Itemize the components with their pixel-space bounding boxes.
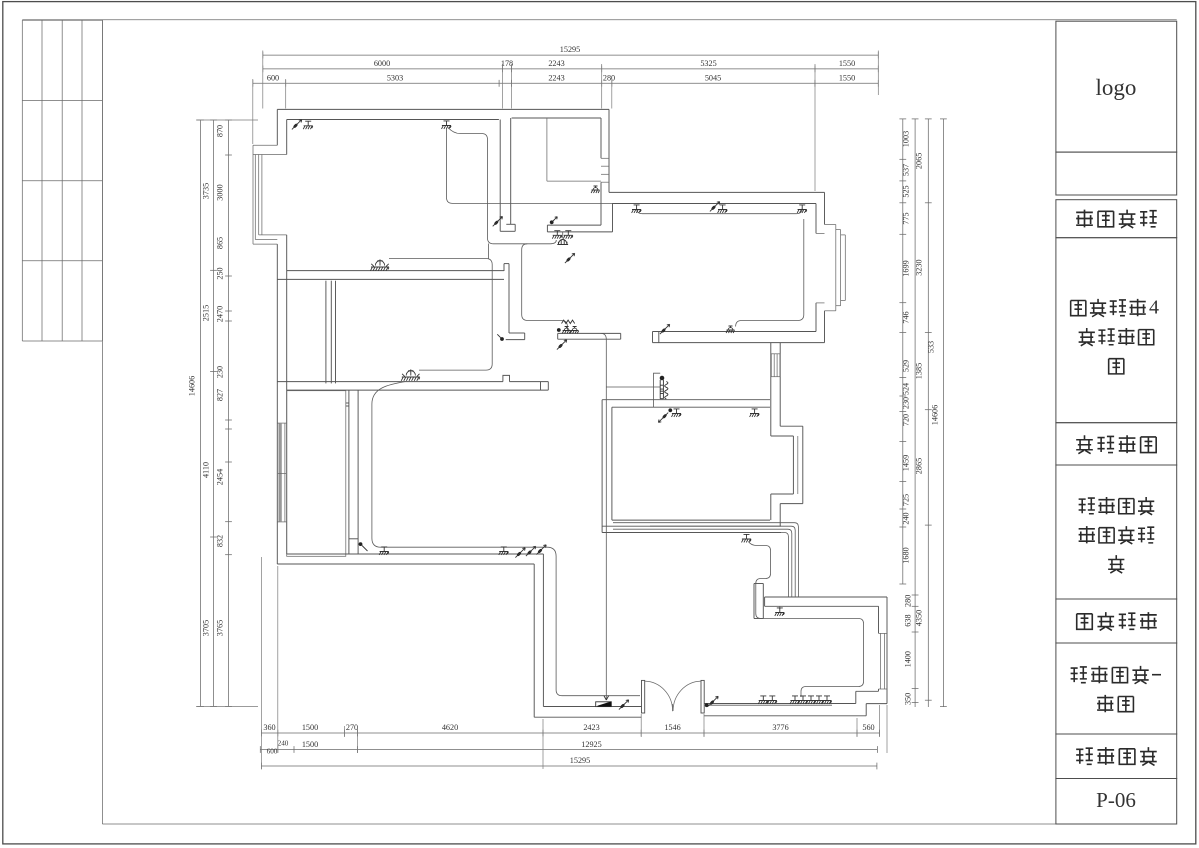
svg-text:280: 280 (603, 74, 615, 83)
svg-text:P-06: P-06 (1096, 788, 1136, 812)
svg-text:5325: 5325 (700, 59, 716, 68)
svg-text:1699: 1699 (901, 260, 910, 276)
svg-text:2470: 2470 (216, 306, 225, 322)
svg-text:533: 533 (927, 341, 936, 353)
svg-text:5045: 5045 (705, 74, 721, 83)
svg-text:3230: 3230 (915, 259, 924, 275)
svg-text:537: 537 (901, 164, 910, 176)
svg-text:2454: 2454 (216, 469, 225, 485)
svg-text:270: 270 (346, 723, 358, 732)
svg-text:1546: 1546 (664, 723, 680, 732)
svg-text:865: 865 (216, 237, 225, 249)
svg-text:5303: 5303 (387, 74, 403, 83)
svg-text:2865: 2865 (915, 458, 924, 474)
svg-text:827: 827 (216, 389, 225, 401)
svg-text:350: 350 (903, 693, 912, 705)
svg-text:638: 638 (903, 614, 912, 626)
svg-text:560: 560 (862, 723, 874, 732)
svg-text:1550: 1550 (839, 59, 855, 68)
svg-text:525: 525 (901, 185, 910, 197)
svg-text:600: 600 (267, 74, 279, 83)
svg-text:1400: 1400 (903, 651, 912, 667)
svg-text:250: 250 (216, 267, 225, 279)
svg-text:3735: 3735 (202, 183, 211, 199)
svg-text:3765: 3765 (216, 620, 225, 636)
svg-text:870: 870 (216, 125, 225, 137)
svg-text:529: 529 (901, 360, 910, 372)
svg-text:4350: 4350 (915, 610, 924, 626)
svg-text:2423: 2423 (583, 723, 599, 732)
svg-text:2243: 2243 (548, 59, 564, 68)
svg-text:2515: 2515 (202, 305, 211, 321)
svg-text:240: 240 (901, 512, 910, 524)
svg-text:1385: 1385 (915, 363, 924, 379)
svg-text:746: 746 (901, 311, 910, 323)
svg-text:230: 230 (216, 366, 225, 378)
svg-text:6000: 6000 (374, 59, 390, 68)
svg-text:1459: 1459 (901, 455, 910, 471)
svg-text:1500: 1500 (302, 740, 318, 749)
svg-text:832: 832 (216, 535, 225, 547)
svg-text:1550: 1550 (839, 74, 855, 83)
svg-text:725: 725 (901, 494, 910, 506)
svg-text:4620: 4620 (442, 723, 458, 732)
svg-text:360: 360 (263, 723, 275, 732)
svg-text:4: 4 (1149, 297, 1159, 319)
svg-text:3776: 3776 (772, 723, 788, 732)
svg-text:4110: 4110 (202, 462, 211, 478)
svg-text:14606: 14606 (188, 376, 197, 396)
svg-text:720: 720 (901, 414, 910, 426)
svg-text:logo: logo (1096, 75, 1137, 100)
svg-text:775: 775 (901, 212, 910, 224)
svg-text:12925: 12925 (581, 740, 601, 749)
svg-text:600: 600 (267, 748, 278, 756)
svg-text:2243: 2243 (548, 74, 564, 83)
svg-text:230: 230 (901, 397, 910, 409)
svg-text:14606: 14606 (931, 405, 940, 425)
svg-text:3705: 3705 (202, 620, 211, 636)
svg-text:15295: 15295 (560, 45, 580, 54)
svg-text:15295: 15295 (570, 756, 590, 765)
svg-text:240: 240 (278, 739, 289, 747)
svg-text:1680: 1680 (901, 547, 910, 563)
svg-text:1003: 1003 (901, 131, 910, 147)
svg-text:3000: 3000 (216, 184, 225, 200)
svg-text:2065: 2065 (915, 153, 924, 169)
svg-text:1500: 1500 (302, 723, 318, 732)
svg-text:280: 280 (903, 595, 912, 607)
svg-text:524: 524 (901, 383, 910, 395)
